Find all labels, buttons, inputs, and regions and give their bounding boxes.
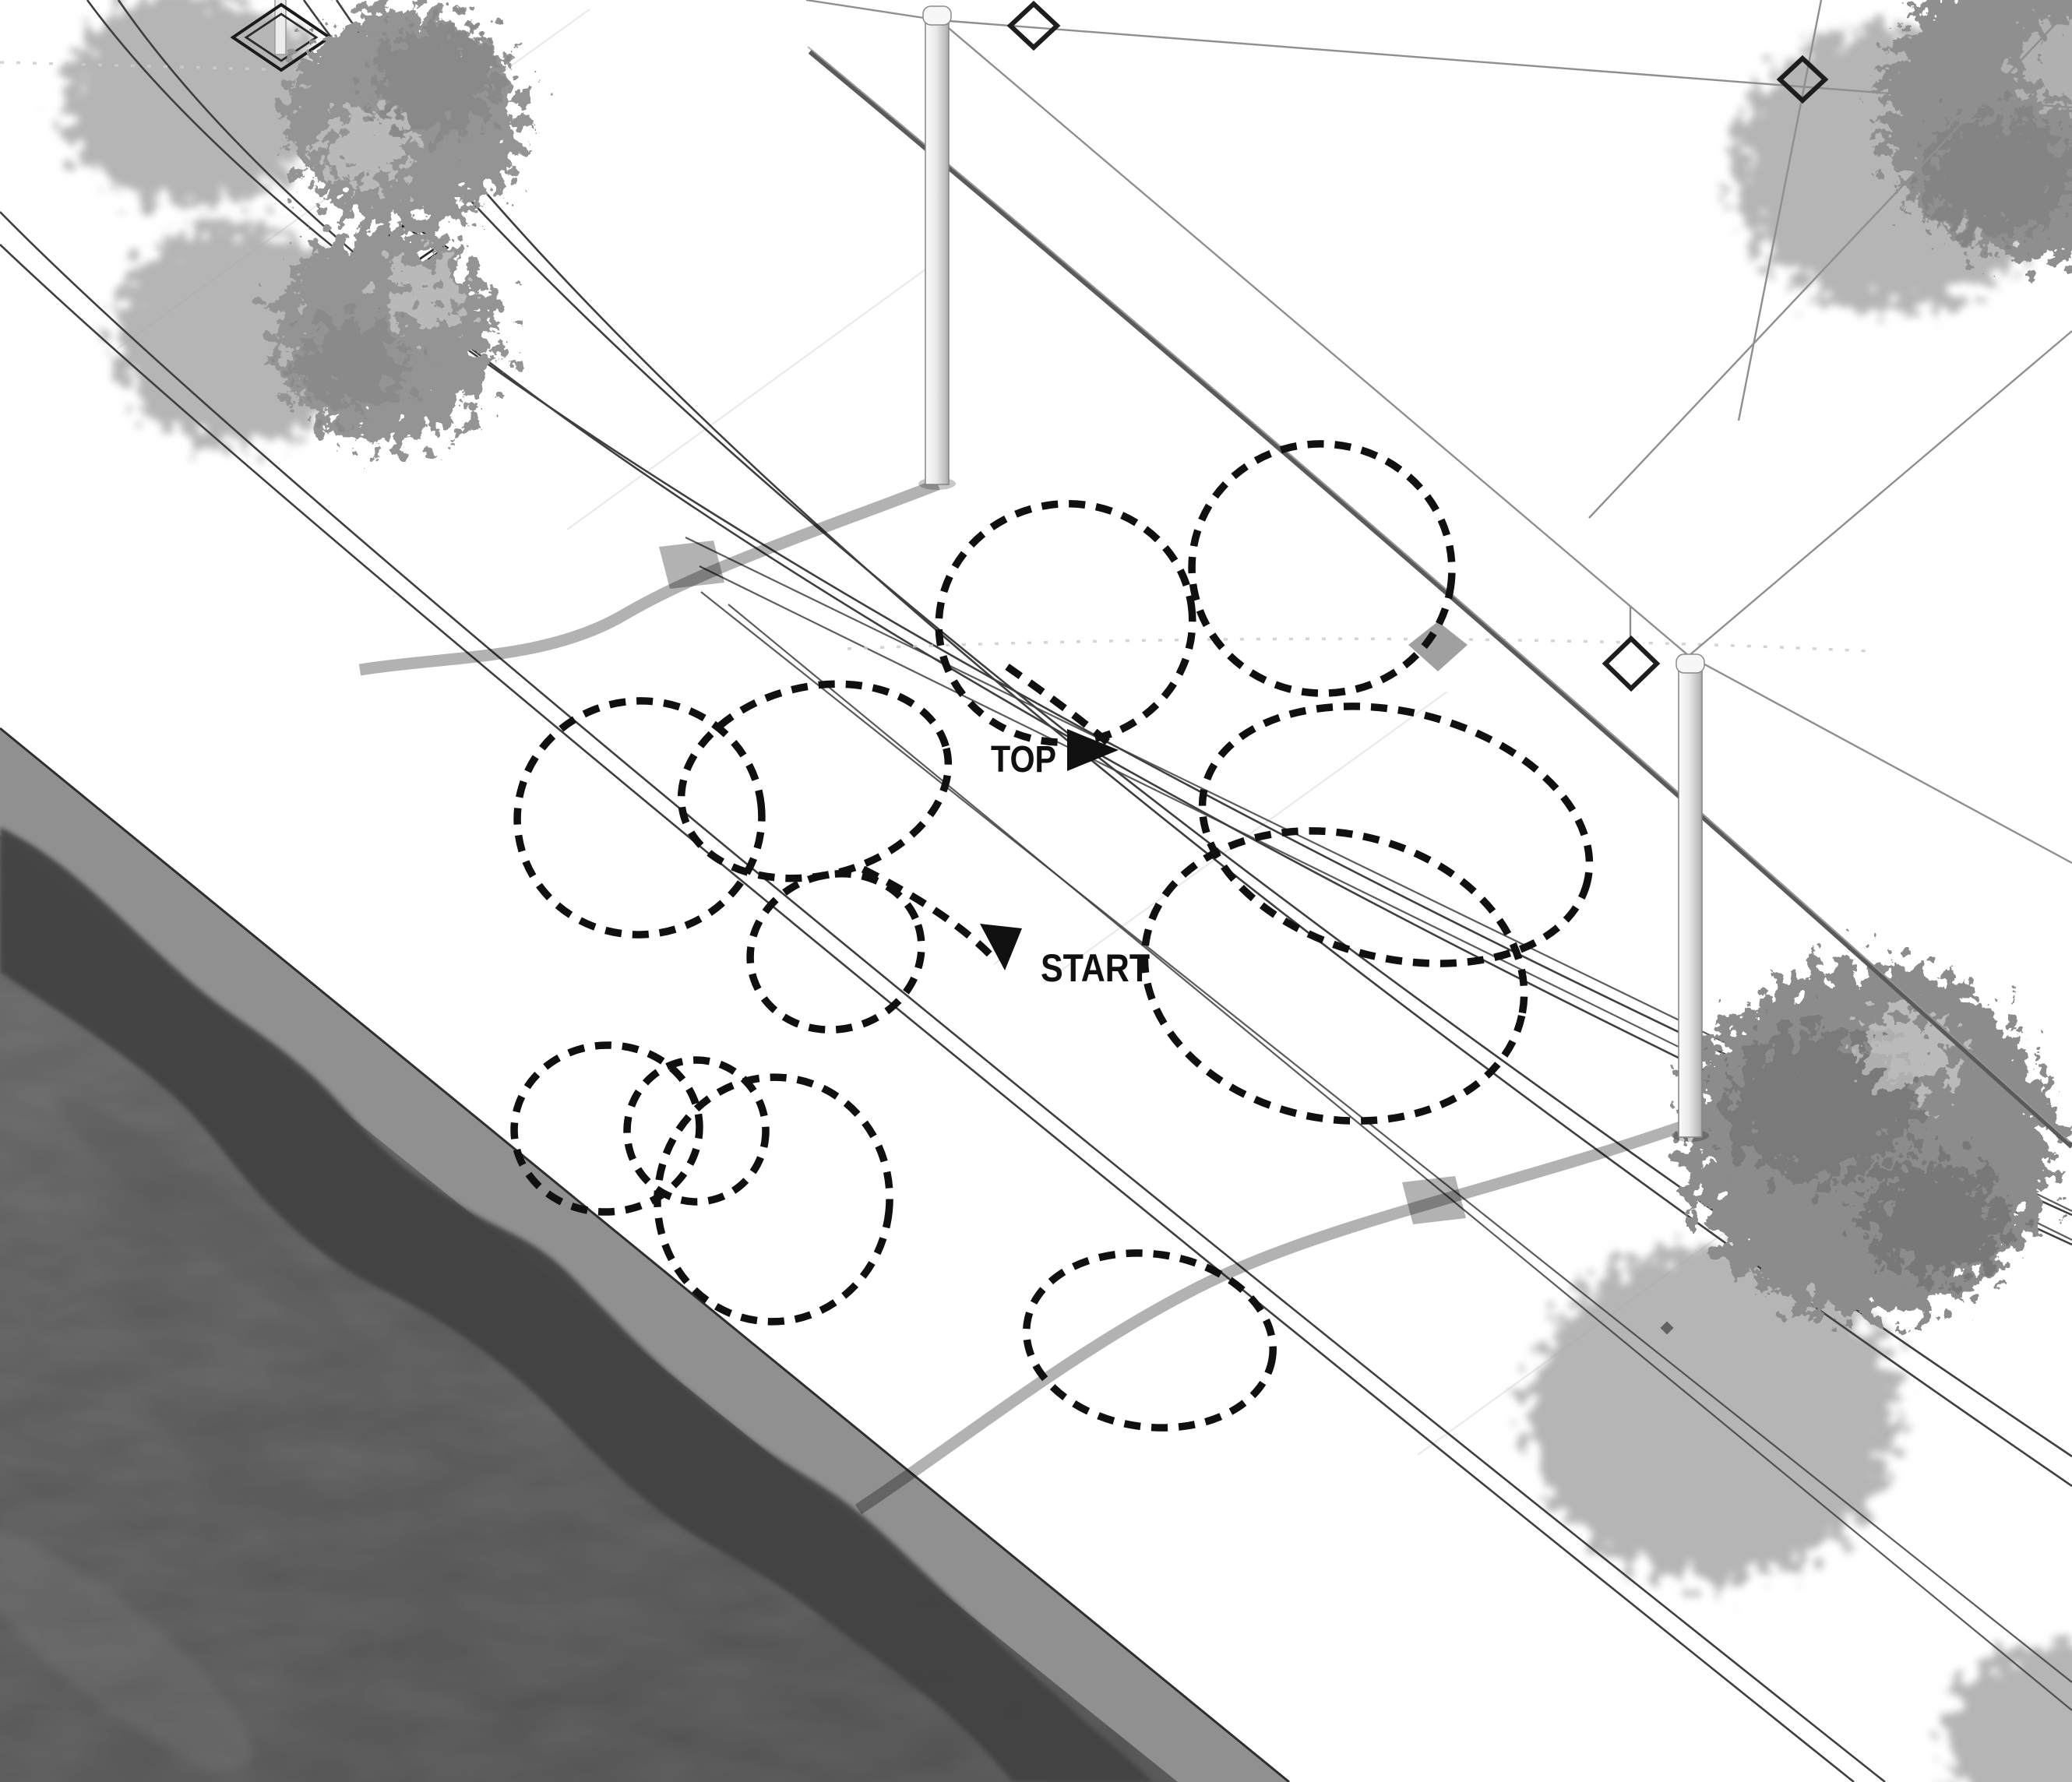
path-loop [1117, 797, 1551, 1155]
path-loop [1175, 667, 1616, 1002]
path-loop [506, 688, 773, 946]
joint-line [567, 257, 943, 530]
catenary-wire [1689, 656, 2072, 863]
label-start: START [1041, 946, 1150, 990]
canal [0, 701, 1324, 1782]
poles [918, 6, 1709, 1142]
tree-canopy [287, 6, 523, 227]
pole-shadow [360, 484, 938, 670]
catenary-pole [918, 6, 956, 490]
diagram-stage: TOP START [0, 0, 2072, 1782]
tree-shadow [1947, 1639, 2072, 1782]
pole-cap [923, 6, 951, 25]
diamond-shadow [1408, 622, 1468, 671]
diamond-light [1605, 639, 1657, 688]
path-loop [661, 657, 969, 905]
street-diagram: TOP START [0, 0, 2072, 1782]
wire-shadow-dashes [847, 639, 1869, 651]
lamp-head-shadow [1402, 1176, 1466, 1224]
label-top: TOP [991, 738, 1056, 780]
tree-canopy [277, 227, 498, 445]
catenary-wire [939, 20, 1689, 656]
tree-canopy [1684, 963, 2055, 1319]
pole-cap [1676, 654, 1704, 673]
path-loop [730, 852, 942, 1052]
lamp-head-shadow [659, 541, 724, 589]
catenary-wire [806, 0, 939, 20]
path-connector [863, 869, 997, 962]
